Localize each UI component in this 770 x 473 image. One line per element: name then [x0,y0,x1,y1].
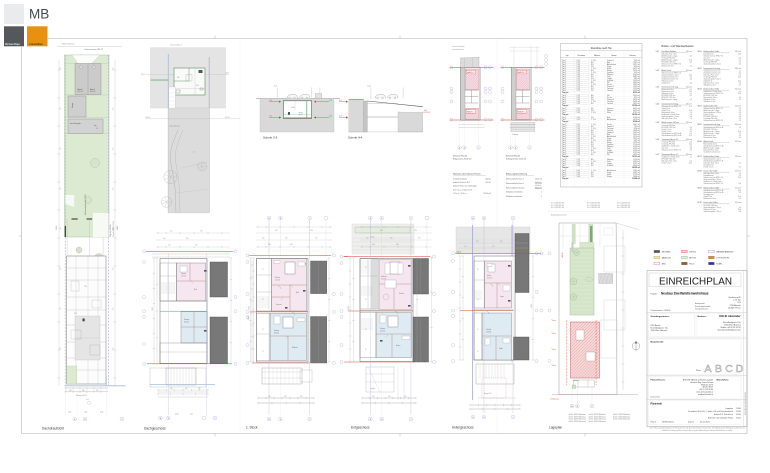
svg-text:Gefalledammung EPS im M.: Gefalledammung EPS im M. [704,146,725,148]
svg-text:5,45: 5,45 [195,245,198,247]
svg-text:Lageplan: Lageplan [725,408,733,410]
svg-text:Flugweg +432,0m: Flugweg +432,0m [110,224,112,237]
svg-text:LUFTSCHICHT: LUFTSCHICHT [716,258,730,260]
svg-text:3,95: 3,95 [196,85,199,87]
svg-text:41,0 cm: 41,0 cm [686,139,693,141]
svg-text:1,90: 1,90 [168,245,171,247]
svg-text:Grundeigentumer:: Grundeigentumer: [651,315,670,318]
svg-text:1.03: 1.03 [656,87,660,89]
svg-text:1:100: 1:100 [736,417,741,419]
svg-text:Top ges.: Top ges. [562,178,569,180]
svg-text:Unterschrift: Unterschrift [651,396,661,399]
svg-text:4,25: 4,25 [275,230,278,232]
svg-text:6,10: 6,10 [113,107,115,110]
svg-text:Wohnnutzflache Haus 1: Wohnnutzflache Haus 1 [506,178,524,181]
svg-text:4,25: 4,25 [60,147,62,150]
svg-text:18766113-01 EINREICHPLAN: 18766113-01 EINREICHPLAN [744,391,747,415]
svg-text:6,10: 6,10 [113,147,115,150]
svg-text:2,0: 2,0 [690,56,692,58]
svg-text:Trennlage PE-Folie: Trennlage PE-Folie [704,118,718,120]
svg-text:224: 224 [737,302,740,304]
svg-text:ZIEGEL: ZIEGEL [689,252,696,254]
svg-text:240,1 m2: 240,1 m2 [535,187,542,189]
svg-text:5,20: 5,20 [388,396,391,398]
svg-text:Siedlerweg 86: Siedlerweg 86 [729,296,741,299]
svg-text:14,2 m2: 14,2 m2 [275,279,280,281]
svg-text:29,0 cm: 29,0 cm [686,51,693,53]
svg-text:EPS-W20 TSD 3cm: EPS-W20 TSD 3cm [662,158,677,160]
svg-text:EPS-W20 TSD 3cm: EPS-W20 TSD 3cm [704,129,719,131]
svg-text:Gefalledammung EPS im M.: Gefalledammung EPS im M. [704,127,725,129]
svg-text:-1,53: -1,53 [269,100,272,102]
svg-text:12,45: 12,45 [152,307,154,311]
svg-text:4,25: 4,25 [185,388,188,390]
svg-text:21,0 cm: 21,0 cm [735,187,742,189]
svg-text:2,10: 2,10 [372,396,375,398]
svg-text:20,0: 20,0 [738,93,741,95]
svg-text:Dampfbremse: Dampfbremse [704,194,714,196]
svg-text:12,4: 12,4 [74,313,77,315]
svg-text:5,0: 5,0 [739,173,741,175]
svg-text:3,0: 3,0 [739,118,741,120]
svg-text:Gefalledammung EPS im M.: Gefalledammung EPS im M. [662,133,683,135]
svg-text:3,1: 3,1 [365,267,367,269]
svg-text:-1,53: -1,53 [269,116,272,118]
svg-text:2,95: 2,95 [418,238,421,240]
svg-text:25,0: 25,0 [689,162,692,164]
svg-text:103800: 103800 [664,310,670,312]
svg-text:EINREICHPLAN: EINREICHPLAN [659,276,732,288]
svg-text:Lageplan: Lageplan [549,425,562,429]
svg-text:172 m2 + 32,6 = x: 172 m2 + 32,6 = x [453,193,467,195]
svg-text:DFL+8,5: DFL+8,5 [78,91,84,93]
svg-text:1,5: 1,5 [690,156,692,158]
svg-text:Kellergeschoss 54,20 m2: Kellergeschoss 54,20 m2 [506,159,526,161]
svg-text:107,8 m2: 107,8 m2 [535,183,542,185]
svg-text:5,0: 5,0 [739,74,741,76]
svg-text:Top: Top [94,125,96,127]
svg-text:0,3: 0,3 [690,131,692,133]
svg-text:Kochen: Kochen [399,293,404,295]
svg-text:2,0: 2,0 [739,84,741,86]
svg-text:3,1: 3,1 [262,299,264,301]
svg-text:2,0: 2,0 [739,162,741,164]
svg-text:140,89 m2: 140,89 m2 [632,113,640,116]
svg-text:Top ges.: Top ges. [562,167,569,169]
svg-text:bebaute Flache incl. Nebengeb.: bebaute Flache incl. Nebengeb. [453,185,477,188]
svg-text:HAUS 1: HAUS 1 [518,111,526,114]
svg-text:1,5: 1,5 [739,114,741,116]
svg-text:4,25: 4,25 [60,187,62,190]
svg-text:1,5: 1,5 [739,99,741,101]
svg-text:Ziegel 25cm: Ziegel 25cm [704,196,713,198]
svg-text:20,0: 20,0 [738,80,741,82]
svg-text:Erdgeschoss 90,46 m2: Erdgeschoss 90,46 m2 [453,159,471,161]
svg-text:-2,0: -2,0 [551,319,553,321]
svg-text:25,0: 25,0 [689,135,692,137]
svg-text:12,45: 12,45 [248,306,250,310]
svg-text:95,29 m2: 95,29 m2 [633,92,640,94]
svg-text:2: 2 [541,192,542,194]
svg-text:2: 2 [541,196,542,198]
svg-text:Dachdraufsicht: Dachdraufsicht [42,426,64,430]
svg-text:12,45: 12,45 [348,306,350,310]
svg-text:1,80: 1,80 [268,396,271,398]
svg-text:3,0: 3,0 [690,129,692,131]
svg-text:Planverfasser:: Planverfasser: [651,380,666,382]
svg-text:Grosse: Grosse [629,55,636,57]
svg-text:0,40: 0,40 [262,238,265,240]
svg-text:KDS Besitz-: KDS Besitz- [651,324,662,327]
svg-text:EPS-W20 TSD 3cm: EPS-W20 TSD 3cm [662,95,677,97]
svg-text:+0,00: +0,00 [274,86,278,88]
svg-text:Grundstucksflache: Grundstucksflache [453,178,467,181]
svg-text:Gartenzweig UN 47: Gartenzweig UN 47 [84,48,104,51]
svg-text:Kies 5cm: Kies 5cm [704,58,711,60]
svg-text:2,90: 2,90 [198,388,201,390]
svg-text:Stiege: Stiege [607,175,612,178]
svg-text:1090 Wien (Austria): 1090 Wien (Austria) [651,329,668,332]
svg-text:Eingang: Eingang [513,134,519,136]
svg-text:5,0: 5,0 [739,60,741,62]
svg-text:6,10: 6,10 [113,227,115,230]
svg-text:3,1: 3,1 [477,299,479,301]
svg-text:65,94 m2: 65,94 m2 [633,120,640,123]
svg-text:3,15: 3,15 [96,390,99,392]
svg-text:4,25: 4,25 [60,267,62,270]
svg-text:5,0: 5,0 [690,146,692,148]
svg-text:1,5: 1,5 [739,133,741,135]
svg-text:2,0: 2,0 [690,114,692,116]
svg-text:Erdgeschoss: Erdgeschoss [351,425,370,429]
svg-text:6,0: 6,0 [690,76,692,78]
svg-text:-2,0: -2,0 [551,364,553,366]
svg-text:25,0: 25,0 [738,209,741,211]
svg-text:mailbox@kaislik.at: mailbox@kaislik.at [698,393,713,396]
svg-text:1,5: 1,5 [739,62,741,64]
svg-text:D: D [736,363,744,375]
svg-text:2,0: 2,0 [739,207,741,209]
svg-text:3,1: 3,1 [262,351,264,353]
svg-text:7,90: 7,90 [414,230,417,232]
svg-text:Trennlage PE-Folie: Trennlage PE-Folie [704,62,718,64]
svg-text:-0,60: -0,60 [424,110,427,112]
svg-text:6,0: 6,0 [739,112,741,114]
svg-text:25,0: 25,0 [738,76,741,78]
svg-text:2,0: 2,0 [690,66,692,68]
svg-text:6,10: 6,10 [190,414,193,416]
svg-text:34,0 cm: 34,0 cm [735,68,742,70]
svg-text:Top ges.: Top ges. [562,121,569,123]
svg-text:4,25: 4,25 [60,347,62,350]
svg-text:Ziegel 25cm: Ziegel 25cm [662,108,671,110]
svg-text:1.04: 1.04 [656,103,660,105]
svg-text:15,4 m2: 15,4 m2 [380,330,385,332]
svg-text:4,25: 4,25 [60,227,62,230]
svg-text:1,90: 1,90 [268,244,271,246]
svg-text:alexander.kolik@gmail.com: alexander.kolik@gmail.com [717,328,740,331]
svg-text:20,0 cm: 20,0 cm [686,122,693,124]
svg-text:Michael Bajer: Michael Bajer [5,43,20,46]
svg-text:5,0: 5,0 [690,93,692,95]
svg-text:Ansichten der aktuellen Plane: Ansichten der aktuellen Plane [708,416,733,419]
svg-text:Einlagezahl:: Einlagezahl: [695,303,705,305]
svg-text:4,15: 4,15 [300,396,303,398]
svg-text:Projekt:: Projekt: [651,292,658,295]
svg-text:6,0: 6,0 [690,127,692,129]
svg-text:Abstellraum: Abstellraum [607,118,617,121]
svg-text:22.11.2021: 22.11.2021 [700,421,711,423]
svg-text:3,0: 3,0 [739,82,741,84]
svg-text:Mineralwolle 10cm: Mineralwolle 10cm [704,144,718,146]
svg-text:HAUS 1: HAUS 1 [467,111,475,114]
svg-text:Mineralwolle 10cm: Mineralwolle 10cm [704,137,718,139]
svg-text:6,10: 6,10 [113,67,115,70]
svg-text:3,60: 3,60 [285,238,288,240]
svg-text:3,1: 3,1 [477,269,479,271]
svg-text:Projektnummer: Projektnummer [651,309,664,312]
svg-text:Kellergeschoss: Kellergeschoss [452,425,474,429]
svg-text:6,0: 6,0 [739,211,741,213]
svg-text:(Gar. 21,4 + Zufahrt 11,2): (Gar. 21,4 + Zufahrt 11,2) [453,188,472,191]
svg-text:Dampfbremse: Dampfbremse [704,54,714,56]
svg-text:EPS-W20 TSD 3cm: EPS-W20 TSD 3cm [662,62,677,64]
svg-text:+431,50: +431,50 [456,251,461,253]
svg-text:EPS-W20 TSD 3cm: EPS-W20 TSD 3cm [704,205,719,207]
svg-text:2136 Altstadt: 2136 Altstadt [730,304,741,307]
svg-text:35,0 cm: 35,0 cm [686,154,693,156]
svg-text:0,3: 0,3 [690,160,692,162]
svg-text:EPS-W20 TSD 3cm: EPS-W20 TSD 3cm [704,116,719,118]
svg-text:1.02: 1.02 [656,70,660,72]
svg-text:Trennlage PE-Folie: Trennlage PE-Folie [662,125,676,127]
svg-text:C: C [725,363,733,375]
svg-text:Name: Name [611,55,617,57]
svg-text:Wohnen: Wohnen [381,276,387,278]
svg-text:Kies 5cm: Kies 5cm [662,148,669,150]
svg-text:174,96 m2: 174,96 m2 [483,193,491,195]
svg-text:Planinhalt: Planinhalt [651,403,663,406]
svg-text:25,0: 25,0 [689,106,692,108]
svg-text:153,68 m2: 153,68 m2 [632,105,640,107]
svg-text:0,3: 0,3 [739,97,741,99]
svg-text:HAUS 2: HAUS 2 [467,71,475,74]
svg-text:2,35: 2,35 [69,390,72,392]
svg-text:Plan n.: Plan n. [651,421,658,423]
svg-text:431,6: 431,6 [226,73,230,75]
svg-text:1,90: 1,90 [372,244,375,246]
svg-text:Mineralwolle 10cm: Mineralwolle 10cm [662,112,676,114]
svg-text:5,0: 5,0 [690,116,692,118]
svg-text:14,25: 14,25 [175,414,179,416]
svg-text:Massfuhrer:: Massfuhrer: [717,380,730,382]
svg-text:4,25: 4,25 [60,107,62,110]
svg-text:0,40: 0,40 [163,238,166,240]
svg-text:W.08: W.08 [698,171,702,173]
svg-text:431,50: 431,50 [146,117,151,119]
svg-text:3,95: 3,95 [404,396,407,398]
svg-text:Grundrisse KG, EG, 1. Stock, D: Grundrisse KG, EG, 1. Stock, DG und Dach… [688,410,733,413]
svg-text:WARMEDAMMUNG: WARMEDAMMUNG [716,251,734,254]
svg-text:W.03: W.03 [698,89,702,91]
svg-text:0,3: 0,3 [739,64,741,66]
svg-text:3,1: 3,1 [365,349,367,351]
svg-text:Gefalledammung EPS im M.: Gefalledammung EPS im M. [704,190,725,192]
svg-text:25,0: 25,0 [738,177,741,179]
svg-text:+432,10: +432,10 [562,252,564,258]
svg-text:6,10: 6,10 [113,267,115,270]
svg-text:18766113-01: 18766113-01 [662,421,675,423]
svg-text:+0,0: +0,0 [86,399,89,401]
svg-text:beheizte Flache: beheizte Flache [506,155,521,158]
svg-text:0,3: 0,3 [690,99,692,101]
svg-text:114,84 m2: 114,84 m2 [632,177,640,180]
svg-text:Dampfbremse: Dampfbremse [704,175,714,177]
svg-text:431,62: 431,62 [225,117,230,119]
svg-text:Schrank: Schrank [607,164,613,167]
svg-text:32,0 cm: 32,0 cm [735,89,742,91]
svg-text:5,0: 5,0 [739,110,741,112]
svg-text:3,60: 3,60 [186,238,189,240]
svg-text:W.06: W.06 [698,141,702,143]
svg-text:0,3: 0,3 [739,120,741,122]
svg-text:5,45: 5,45 [492,246,495,248]
svg-text:Rampe 1:8: Rampe 1:8 [484,393,492,395]
svg-text:Stellplatze erforderlich: Stellplatze erforderlich [506,191,523,194]
svg-text:4,25: 4,25 [380,230,383,232]
svg-text:1,5: 1,5 [739,135,741,137]
svg-text:0,3: 0,3 [690,112,692,114]
svg-text:16,8 m2: 16,8 m2 [274,332,279,334]
svg-text:4,25: 4,25 [60,307,62,310]
svg-text:23,0 cm: 23,0 cm [735,156,742,158]
svg-text:Ziegel 25cm: Ziegel 25cm [662,110,671,112]
svg-text:5,45: 5,45 [396,244,399,246]
svg-text:Haus 1: Haus 1 [90,89,95,91]
svg-text:Bad: Bad [296,292,299,294]
svg-text:10,11: 10,11 [100,412,103,414]
svg-text:6,10: 6,10 [113,307,115,310]
svg-text:1.06: 1.06 [656,139,660,141]
svg-text:2,0: 2,0 [739,72,741,74]
svg-text:Dachgeschoss: Dachgeschoss [144,426,166,430]
svg-text:0,3: 0,3 [690,89,692,91]
svg-text:2,0: 2,0 [739,175,741,177]
svg-text:18,85 wohnhaus: 18,85 wohnhaus [62,44,75,46]
svg-text:20,0: 20,0 [689,91,692,93]
svg-text:W.05: W.05 [698,124,702,126]
svg-text:Ebene: Ebene [594,55,601,57]
svg-text:W.01: W.01 [698,51,702,53]
svg-text:40,0 cm: 40,0 cm [735,124,742,126]
svg-text:18,2 m2: 18,2 m2 [184,321,189,323]
svg-text:3,0: 3,0 [690,82,692,84]
svg-text:Essen: Essen [396,345,400,347]
svg-text:4,25: 4,25 [170,231,173,233]
svg-text:Gefalledammung EPS im M.: Gefalledammung EPS im M. [704,192,725,194]
svg-text:Datum: Datum [688,420,694,423]
svg-text:14,25: 14,25 [68,412,72,414]
svg-text:MB: MB [29,7,49,22]
svg-text:25,0: 25,0 [738,196,741,198]
svg-text:6,90: 6,90 [500,241,503,243]
svg-text:W.10: W.10 [698,202,702,204]
svg-text:0,3: 0,3 [690,62,692,64]
svg-text:NEU: NEU [662,264,667,266]
svg-text:Gefalledammung EPS im M.: Gefalledammung EPS im M. [662,135,683,137]
svg-text:3,1: 3,1 [262,269,264,271]
svg-text:Dampfbremse: Dampfbremse [704,164,714,166]
svg-text:-1,53: -1,53 [339,116,342,118]
svg-text:W.09: W.09 [698,187,702,189]
svg-text:25,0: 25,0 [689,110,692,112]
svg-text:2,0: 2,0 [739,127,741,129]
svg-text:1.05: 1.05 [656,122,660,124]
svg-text:-1,53: -1,53 [329,116,332,118]
svg-text:Immobilien: Immobilien [30,43,44,46]
svg-text:Wohnen: Wohnen [292,347,298,349]
svg-text:Brunnlbadgasse 15a: Brunnlbadgasse 15a [651,327,669,330]
svg-text:132,4 m2: 132,4 m2 [535,179,542,181]
svg-text:Bebauungsbestimmung: Bebauungsbestimmung [506,173,527,176]
svg-text:Plots:: Plots: [696,369,701,372]
svg-text:Katastralgemeinde:: Katastralgemeinde: [695,305,711,308]
svg-text:1:100: 1:100 [736,411,741,413]
svg-text:-1,53: -1,53 [339,100,342,102]
svg-text:1.07: 1.07 [656,154,660,156]
svg-text:27,9: 27,9 [84,286,87,288]
svg-text:Zufahrtsweg Niveau +432,0: Zufahrtsweg Niveau +432,0 [84,194,87,215]
svg-text:1:200: 1:200 [736,408,741,410]
svg-text:20,0: 20,0 [738,190,741,192]
svg-text:Top ges.: Top ges. [562,105,569,107]
svg-text:Bauherr:: Bauherr: [698,316,707,318]
svg-text:beheizte Flache: beheizte Flache [453,155,468,158]
svg-text:3,1: 3,1 [365,299,367,301]
svg-text:25,0: 25,0 [738,54,741,56]
svg-text:20,0: 20,0 [738,131,741,133]
svg-text:7,90: 7,90 [200,231,203,233]
svg-text:0,3: 0,3 [739,166,741,168]
svg-text:25,0: 25,0 [689,60,692,62]
svg-text:35,0 cm: 35,0 cm [686,70,693,72]
svg-text:Grundstucks-Nr.:: Grundstucks-Nr.: [695,308,709,311]
svg-text:-1,53: -1,53 [329,100,332,102]
svg-text:5,0: 5,0 [739,137,741,139]
svg-text:42,0 cm: 42,0 cm [686,87,693,89]
svg-text:Neubau Zweifamilienwohnhaus: Neubau Zweifamilienwohnhaus [661,292,709,296]
svg-text:1.1: 1.1 [96,128,98,130]
svg-text:12,6 m2: 12,6 m2 [486,331,491,333]
svg-text:Schnitt 3-3: Schnitt 3-3 [263,135,278,139]
svg-text:1,5: 1,5 [690,118,692,120]
svg-text:Bebauung 35,5%: Bebauung 35,5% [76,395,87,397]
svg-text:3,1: 3,1 [477,329,479,331]
svg-text:Schnitt 3-3, Schnitt 4-4: Schnitt 3-3, Schnitt 4-4 [714,413,733,416]
svg-text:1. Stock: 1. Stock [246,425,258,429]
svg-text:Trennlage PE-Folie: Trennlage PE-Folie [662,142,676,144]
svg-text:HAUS 2: HAUS 2 [518,71,526,74]
svg-text:431,2: 431,2 [141,74,145,76]
svg-text:1,20: 1,20 [464,246,467,248]
svg-text:ABBRUCH: ABBRUCH [662,257,672,260]
svg-text:-2,0: -2,0 [551,348,553,350]
svg-text:2,0: 2,0 [739,108,741,110]
svg-text:A: A [704,363,711,375]
svg-text:Gefalledammung EPS im M.: Gefalledammung EPS im M. [704,160,725,162]
svg-text:B: B [715,363,722,375]
svg-text:Mineralwolle 10cm: Mineralwolle 10cm [704,97,718,99]
